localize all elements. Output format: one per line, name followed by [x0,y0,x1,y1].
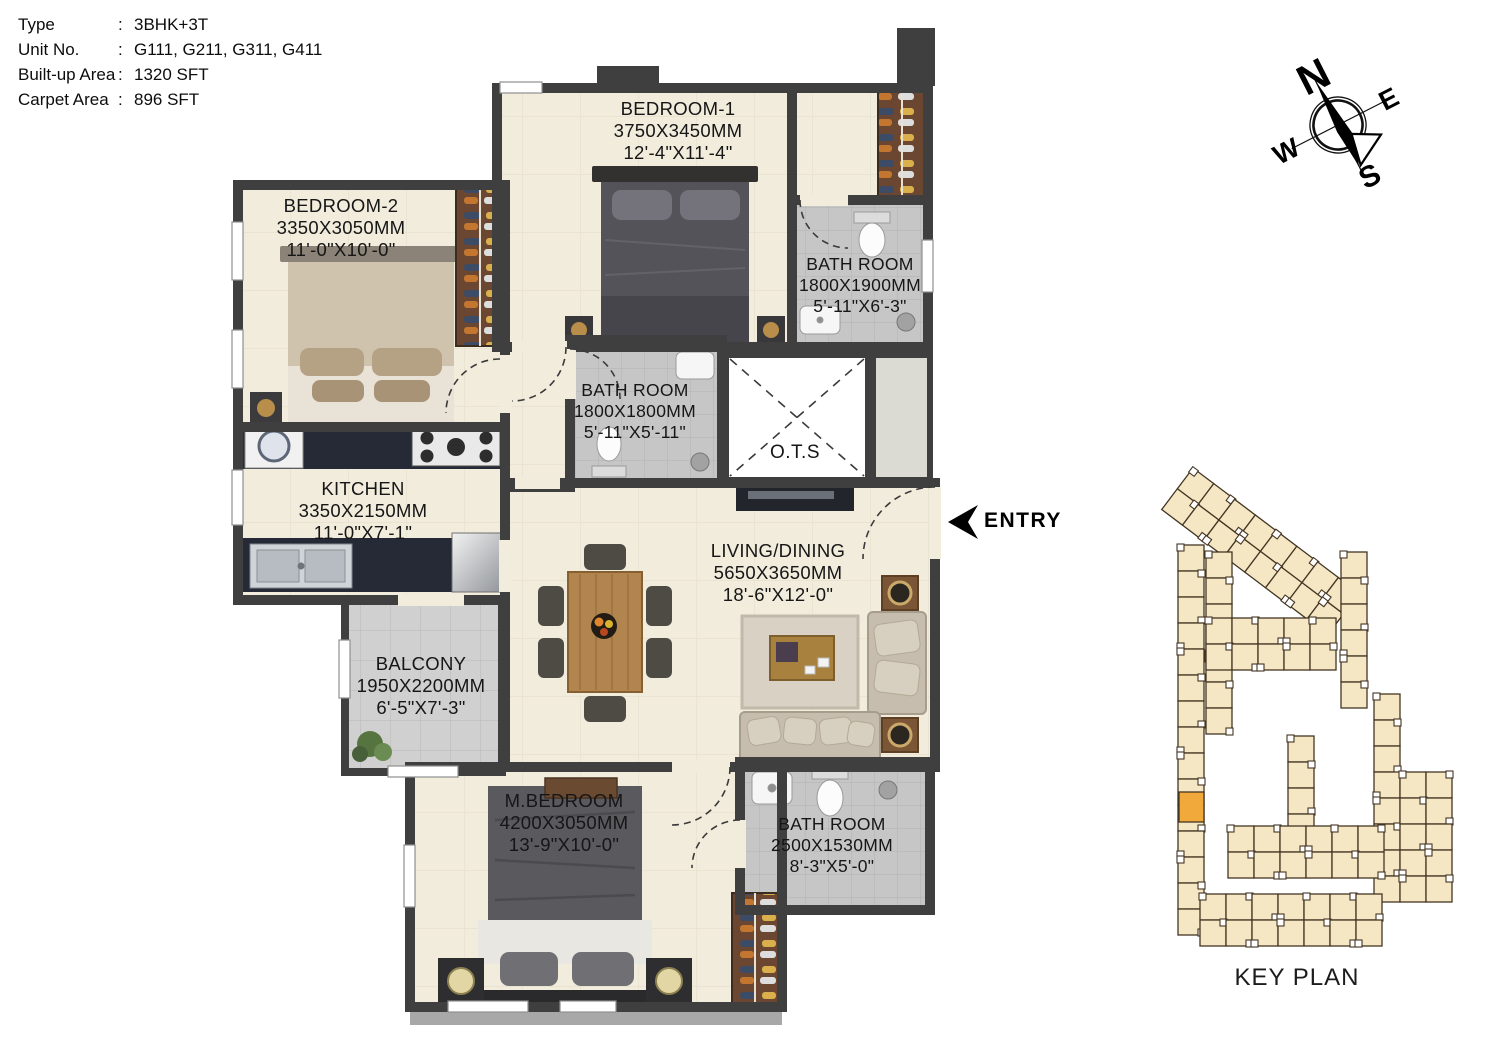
exterior-ledge [410,1012,782,1025]
compass-w: W [1268,132,1305,171]
keyplan-building-strip [1340,551,1368,708]
room-label-kitchen: KITCHEN 3350X2150MM 11'-0"X7'-1" [263,478,463,544]
room-label-mbedroom: M.BEDROOM 4200X3050MM 13'-9"X10'-0" [464,790,664,856]
wall-block-shaft [597,66,659,90]
room-label-ots: O.T.S [770,442,820,464]
keyplan-building-strip [1287,735,1315,841]
entry-label: ENTRY [984,509,1062,533]
key-plan [1160,467,1453,947]
keyplan-building-strip [1205,617,1337,671]
wardrobe-bedroom1 [878,92,926,198]
compass-n: N [1289,49,1337,105]
room-label-bedroom2: BEDROOM-2 3350X3050MM 11'-0"X10'-0" [241,195,441,261]
room-label-living-dining: LIVING/DINING 5650X3650MM 18'-6"X12'-0" [680,540,876,606]
room-label-bath2: BATH ROOM 1800X1800MM 5'-11"X5'-11" [561,380,709,443]
keyplan-title: KEY PLAN [1197,964,1397,992]
keyplan-building-strip [1177,544,1205,936]
room-label-bath3: BATH ROOM 2500X1530MM 8'-3"X5'-0" [757,814,907,877]
keyplan-highlighted-unit [1179,792,1204,822]
wall-block-top [897,28,935,86]
room-label-balcony: BALCONY 1950X2200MM 6'-5"X7'-3" [346,653,496,719]
room-label-bedroom1: BEDROOM-1 3750X3450MM 12'-4"X11'-4" [578,98,778,164]
keyplan-building-strip [1199,893,1383,947]
entry-arrow-icon [948,505,978,539]
keyplan-building-strip [1227,825,1385,879]
compass-e: E [1374,82,1404,117]
floor-plan-page: Type : 3BHK+3T Unit No. : G111, G211, G3… [0,0,1499,1060]
keyplan-building-strip [1399,771,1453,902]
compass-s: S [1354,157,1387,195]
room-label-bath1: BATH ROOM 1800X1900MM 5'-11"X6'-3" [793,254,927,317]
compass-icon: N E W S [1240,26,1432,226]
